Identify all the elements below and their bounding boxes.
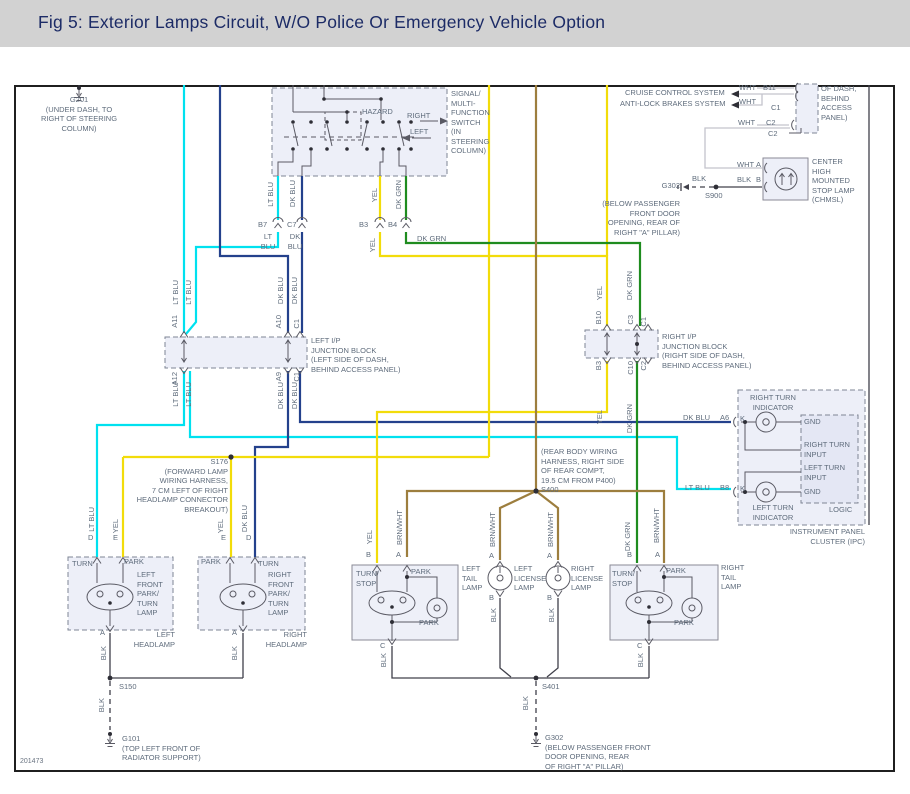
ltblu-label: LT BLU [266,182,276,207]
ipc-right-indicator: RIGHT TURN INDICATOR [733,393,813,412]
yel-label: YEL [368,238,378,252]
ltblu-label: LT BLU [171,280,181,305]
rt-title: RIGHT TAIL LAMP [721,563,744,592]
pin-b3: B3 [594,361,604,370]
blk-label: BLK [99,646,109,660]
ltblu-label: LT BLU [184,280,194,305]
brnwht-label: BRN/WHT [395,510,405,545]
blk-label: BLK [379,653,389,667]
chmsl-box [763,158,808,200]
pin-a10: A10 [274,315,284,328]
yel-label: YEL [365,530,375,544]
ltblu-label: LT BLU [685,483,710,493]
ipc-right-input: RIGHT TURN INPUT [804,440,850,459]
pin-c1: C1 [771,103,781,113]
blk-label: BLK [547,608,557,622]
conn-b4: B4 [388,220,397,230]
pin-b: B [756,175,761,185]
pin-e: E [221,533,226,543]
pin-a6: A6 [720,413,729,423]
pin-b: B [489,593,494,603]
ipc-gnd: GND [804,417,821,427]
dkgrn-label: DK GRN [417,234,446,244]
chmsl-label: CENTER HIGH MOUNTED STOP LAMP (CHMSL) [812,157,855,205]
g302-top-note: (BELOW PASSENGER FRONT DOOR OPENING, REA… [556,199,680,237]
conn-b3: B3 [359,220,368,230]
s176-label: S176 (FORWARD LAMP WIRING HARNESS, 7 CM … [116,457,228,514]
left-junction-block-label: LEFT I/P JUNCTION BLOCK (LEFT SIDE OF DA… [311,336,400,374]
lt-title: LEFT TAIL LAMP [462,564,482,593]
pin-c2: C2 [766,118,776,128]
blk-label: BLK [489,608,499,622]
ipc-left-input: LEFT TURN INPUT [804,463,845,482]
switch-name: SIGNAL/ MULTI- FUNCTION SWITCH (IN STEER… [451,89,490,156]
rt-park: PARK [666,566,686,576]
wiring-diagram-page: Fig 5: Exterior Lamps Circuit, W/O Polic… [0,0,910,794]
pin-b10: B10 [594,311,604,324]
pin-a11: A11 [170,315,180,328]
wht-label: WHT [739,83,756,93]
dkblu-label: DK BLU [683,413,710,423]
pin-c2: C2 [768,129,778,139]
yel-label: YEL [111,519,121,533]
g302-bottom-label: G302 (BELOW PASSENGER FRONT DOOR OPENING… [545,733,651,771]
left-license-title: LEFT LICENSE LAMP [514,564,546,593]
conn-c7: C7 [287,220,297,230]
pin-a: A [489,551,494,561]
pin-a: A [396,550,401,560]
dkblu-label: DK BLU [288,180,298,207]
yel-label: YEL [595,410,605,424]
pin-b11: B11 [763,83,776,93]
s401-label: S401 [542,682,560,692]
wht-label: WHT [737,160,754,170]
pin-c3: C3 [626,315,636,325]
brnwht-label: BRN/WHT [488,512,498,547]
right-license-title: RIGHT LICENSE LAMP [571,564,603,593]
brnwht-label: BRN/WHT [546,512,556,547]
sheet-code: 201473 [20,757,43,767]
pin-k: K [740,414,745,424]
lh-name: LEFT FRONT PARK/ TURN LAMP [137,570,163,618]
rh-title: RIGHT HEADLAMP [237,630,307,649]
rt-turnstop: TURN/ STOP [612,569,635,588]
dkblu-label: DK BLU [290,277,300,304]
ltblu-label: LT BLU [87,507,97,532]
right-junction-block-box [585,330,658,358]
pin-b8: B8 [720,483,729,493]
lh-park: PARK [124,557,144,567]
wht-label: WHT [738,118,755,128]
s150-label: S150 [119,682,137,692]
pin-c1: C1 [292,319,302,329]
right-label: RIGHT [407,111,430,121]
pin-e: E [113,533,118,543]
dkblu-label: DK BLU [276,382,286,409]
c7-wire-label: DK BLU [285,232,305,251]
blk-label: BLK [737,175,751,185]
pin-c2: C2 [639,361,649,371]
brnwht-label: BRN/WHT [652,508,662,543]
right-junction-block-label: RIGHT I/P JUNCTION BLOCK (RIGHT SIDE OF … [662,332,751,370]
s900-label: S900 [705,191,723,201]
rt-park2: PARK [674,618,694,628]
yel-label: YEL [216,519,226,533]
blk-label: BLK [636,653,646,667]
lh-title: LEFT HEADLAMP [105,630,175,649]
left-label: LEFT [410,127,428,137]
pin-d: D [88,533,93,543]
conn-b7: B7 [258,220,267,230]
abs-system-label: ANTI-LOCK BRAKES SYSTEM [620,99,725,109]
rh-name: RIGHT FRONT PARK/ TURN LAMP [268,570,294,618]
panel-fragment-box [796,84,818,133]
dkgrn-label: DK GRN [394,180,404,209]
ltblu-label: LT BLU [184,382,194,407]
blk-label: BLK [230,646,240,660]
pin-c: C [637,641,642,651]
yel-label: YEL [595,286,605,300]
pin-c10: C10 [626,361,636,375]
lt-park2: PARK [419,618,439,628]
blk-label: BLK [97,698,107,712]
yel-label: YEL [370,188,380,202]
lt-park: PARK [411,567,431,577]
dkblu-label: DK BLU [290,382,300,409]
cruise-system-label: CRUISE CONTROL SYSTEM [625,88,725,98]
pin-c1: C1 [639,317,649,327]
left-junction-block-box [165,337,307,368]
ipc-logic: LOGIC [829,505,852,515]
pin-b: B [366,550,371,560]
pin-c1: C1 [292,372,302,382]
g302-top-label: G302 [640,181,680,191]
dkblu-label: DK BLU [240,505,250,532]
pin-a9: A9 [274,372,284,381]
dkgrn-label: DK GRN [623,522,633,551]
b7-wire-label: LT BLU [258,232,278,251]
rh-turn: TURN [258,559,279,569]
rh-park: PARK [201,557,221,567]
blk-label: BLK [521,696,531,710]
pin-k: K [740,484,745,494]
s400-label: (REAR BODY WIRING HARNESS, RIGHT SIDE OF… [541,447,624,495]
pin-a: A [756,160,761,170]
ipc-name: INSTRUMENT PANEL CLUSTER (IPC) [755,527,865,546]
g201-label: G201 (UNDER DASH, TO RIGHT OF STEERING C… [24,95,134,133]
hazard-label: HAZARD [362,107,393,117]
pin-b: B [627,550,632,560]
g101-label: G101 (TOP LEFT FRONT OF RADIATOR SUPPORT… [122,734,201,763]
panel-note: OF DASH, BEHIND ACCESS PANEL) [821,84,856,122]
pin-a: A [547,551,552,561]
lh-turn: TURN [72,559,93,569]
pin-a: A [655,550,660,560]
pin-c: C [380,641,385,651]
pin-a12: A12 [170,372,180,385]
ltblu-label: LT BLU [171,382,181,407]
dkblu-label: DK BLU [276,277,286,304]
wht-label: WHT [739,97,756,107]
pin-b: B [547,593,552,603]
blk-label: BLK [692,174,706,184]
dkgrn-label: DK GRN [625,271,635,300]
ipc-gnd: GND [804,487,821,497]
pin-d: D [246,533,251,543]
ipc-left-indicator: LEFT TURN INDICATOR [733,503,813,522]
lt-turnstop: TURN/ STOP [356,569,379,588]
dkgrn-label: DK GRN [625,404,635,433]
